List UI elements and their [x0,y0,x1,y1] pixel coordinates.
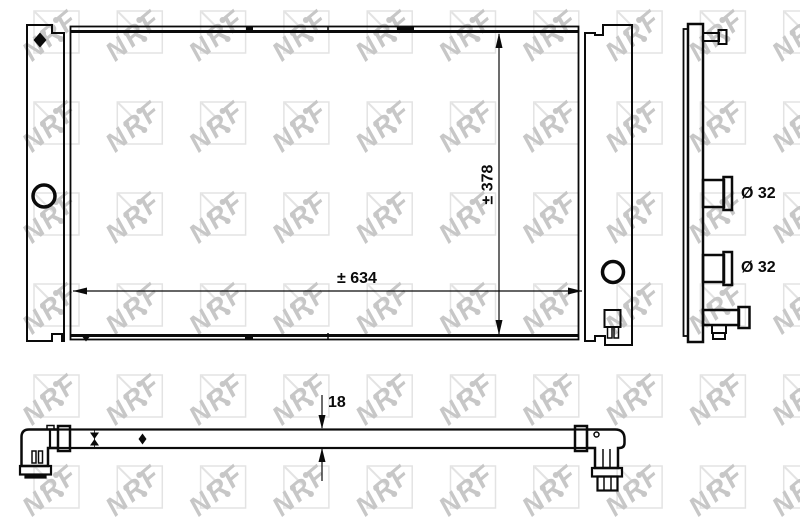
bar-fastener-diamond [139,434,147,445]
bottom-edge-weld-mark [81,335,91,342]
side-port-top [703,177,732,210]
width-dimension [73,288,582,295]
thickness-dimension-label: 18 [328,394,346,411]
side-top-pin [703,30,727,44]
filler-neck [603,262,624,283]
core [71,27,579,340]
bottom-edge-clip [245,334,253,340]
bottom-bar [50,430,587,449]
left-elbow-fitting [20,426,58,479]
side-view [684,24,750,342]
right-tank [585,25,632,345]
side-bottom-stub [712,325,726,339]
height-dimension [496,33,503,335]
mounting-diamond [34,33,47,48]
side-tank-profile [688,24,703,342]
port-diameter-label-top: Ø 32 [741,185,776,202]
drawing-layer [0,0,800,526]
bottom-view [20,395,625,491]
core-width-dimension-label: ± 634 [287,270,427,287]
left-tank [27,25,64,341]
left-tank-hole [33,185,55,207]
front-view [27,25,632,345]
side-port-bottom [703,252,732,285]
right-elbow-fitting [587,430,625,491]
port-diameter-label-bottom: Ø 32 [741,259,776,276]
drain-plug [605,310,621,338]
top-edge-clip [246,27,253,33]
top-edge-clip [397,27,414,33]
thickness-dimension [319,395,326,481]
core-height-dimension-label: ± 378 [480,125,497,245]
radiator-technical-drawing: NRFNRFNRFNRFNRFNRFNRFNRFNRFNRFNRFNRFNRFN… [0,0,800,526]
